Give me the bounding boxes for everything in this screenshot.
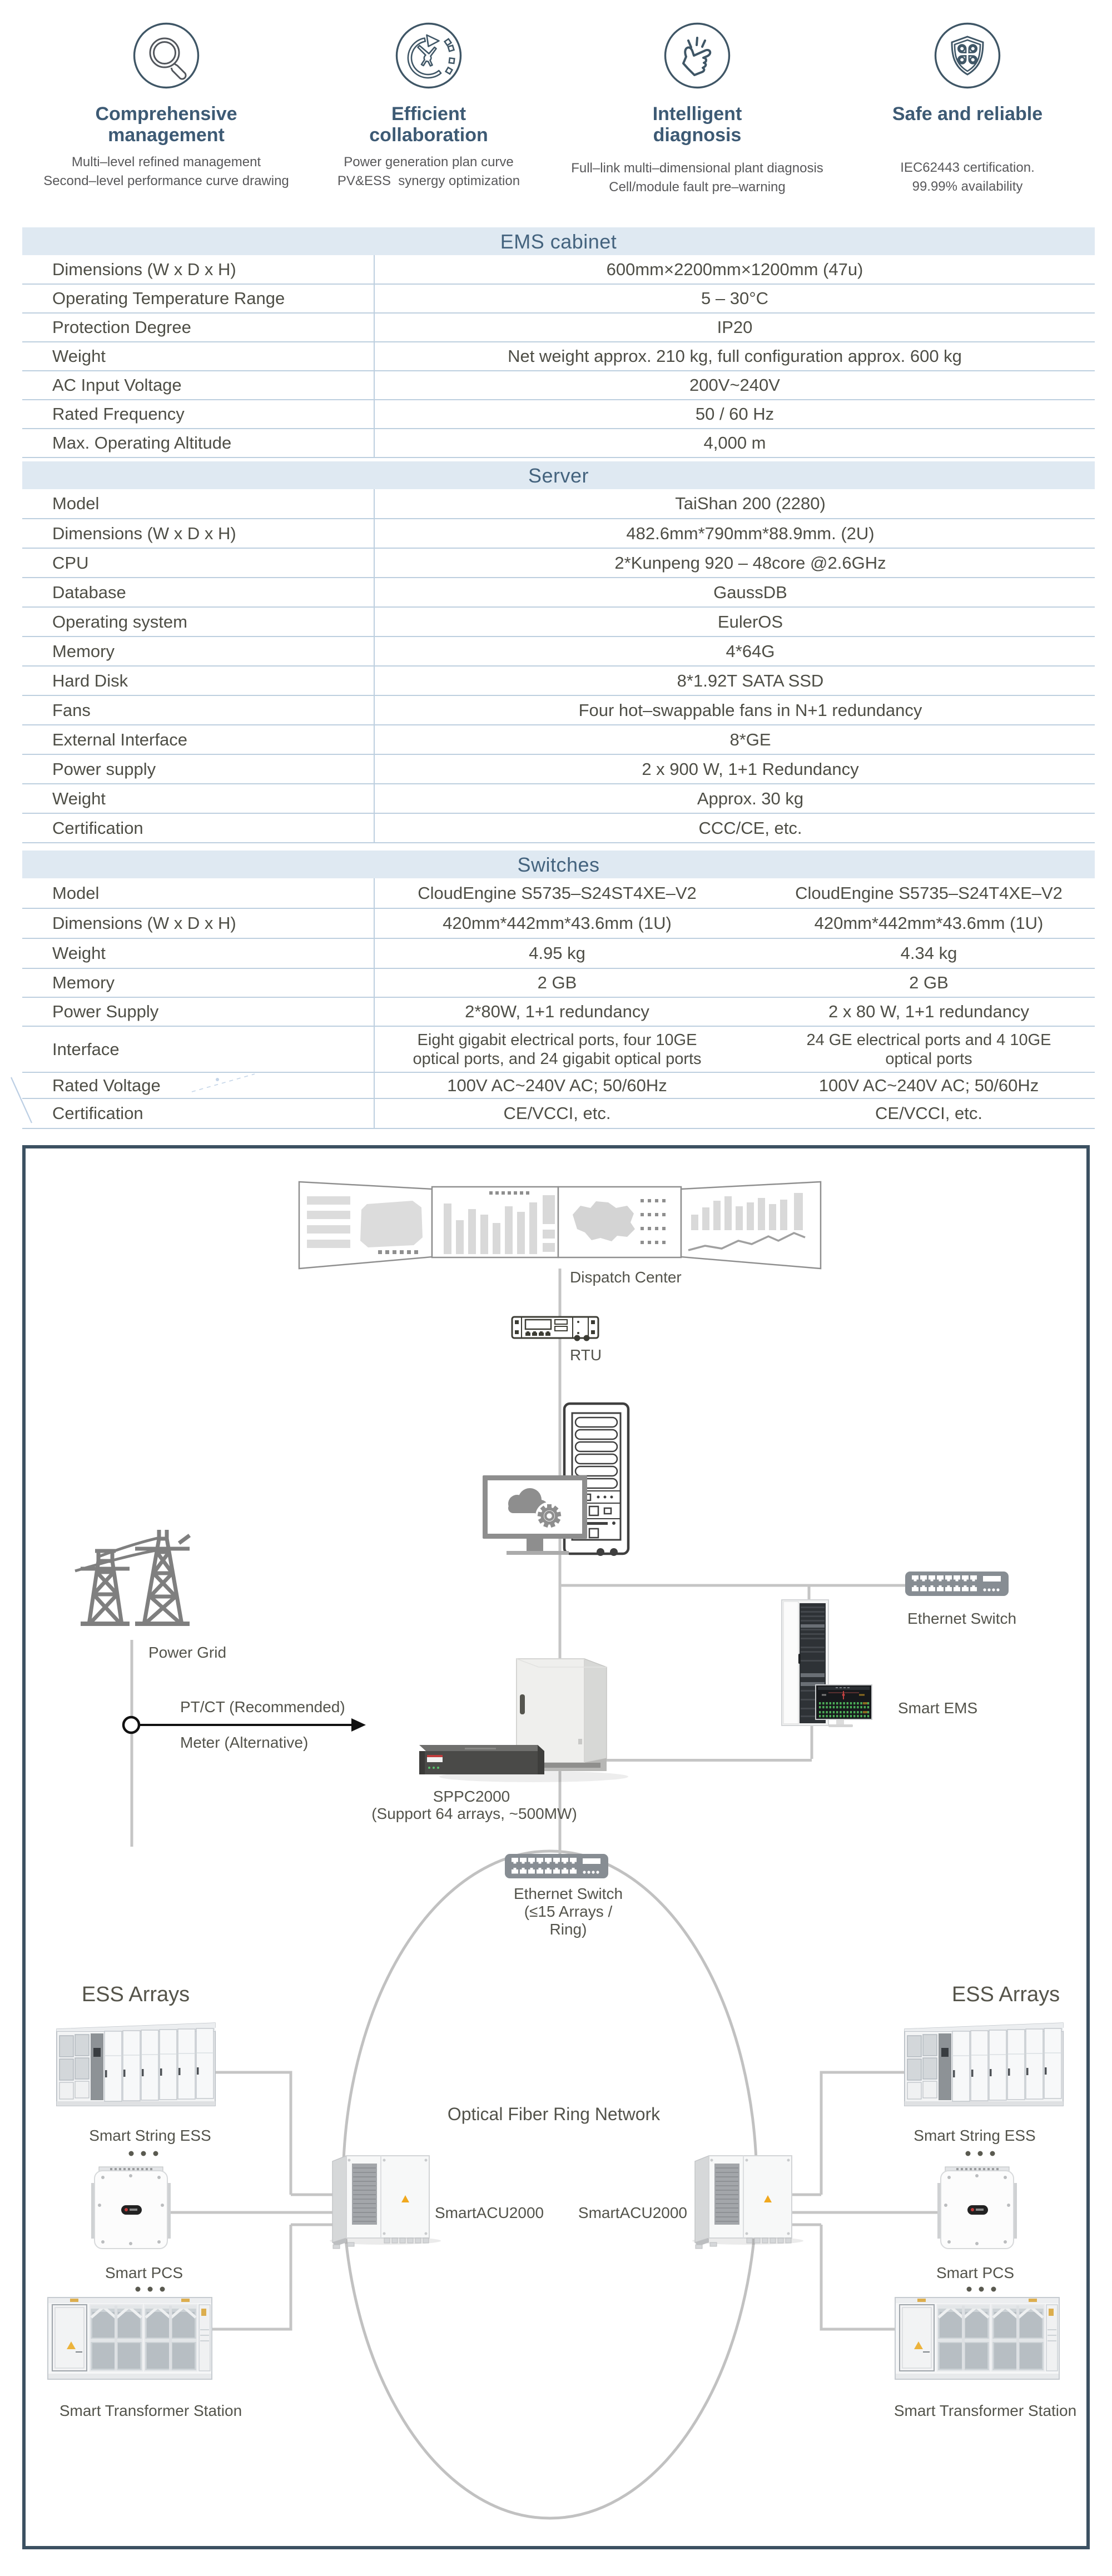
svg-text:Smart EMS: Smart EMS [898, 1699, 977, 1717]
svg-text:Smart String ESS: Smart String ESS [89, 2127, 211, 2144]
svg-text:SPPC2000: SPPC2000 [433, 1788, 510, 1805]
svg-text:Smart PCS: Smart PCS [936, 2264, 1014, 2281]
svg-text:Smart PCS: Smart PCS [105, 2264, 183, 2281]
svg-text:RTU: RTU [570, 1346, 602, 1364]
svg-text:Ethernet Switch: Ethernet Switch [907, 1610, 1016, 1627]
svg-text:ESS Arrays: ESS Arrays [82, 1983, 190, 2006]
svg-text:ESS Arrays: ESS Arrays [952, 1983, 1060, 2006]
svg-text:Ring): Ring) [550, 1921, 587, 1938]
svg-text:Smart Transformer Station: Smart Transformer Station [894, 2402, 1076, 2419]
svg-text:Power Grid: Power Grid [148, 1644, 226, 1661]
svg-text:Ethernet Switch: Ethernet Switch [514, 1885, 623, 1902]
svg-text:Optical Fiber Ring Network: Optical Fiber Ring Network [448, 2104, 661, 2124]
svg-text:PT/CT (Recommended): PT/CT (Recommended) [180, 1698, 345, 1715]
svg-text:Smart String ESS: Smart String ESS [914, 2127, 1035, 2144]
svg-text:Smart Transformer Station: Smart Transformer Station [59, 2402, 242, 2419]
svg-text:(Support 64 arrays, ~500MW): (Support 64 arrays, ~500MW) [371, 1805, 577, 1822]
svg-text:(≤15 Arrays /: (≤15 Arrays / [524, 1903, 613, 1920]
svg-text:Dispatch Center: Dispatch Center [570, 1269, 682, 1286]
svg-text:SmartACU2000: SmartACU2000 [435, 2204, 544, 2221]
svg-text:SmartACU2000: SmartACU2000 [578, 2204, 687, 2221]
svg-text:Meter (Alternative): Meter (Alternative) [180, 1734, 308, 1751]
